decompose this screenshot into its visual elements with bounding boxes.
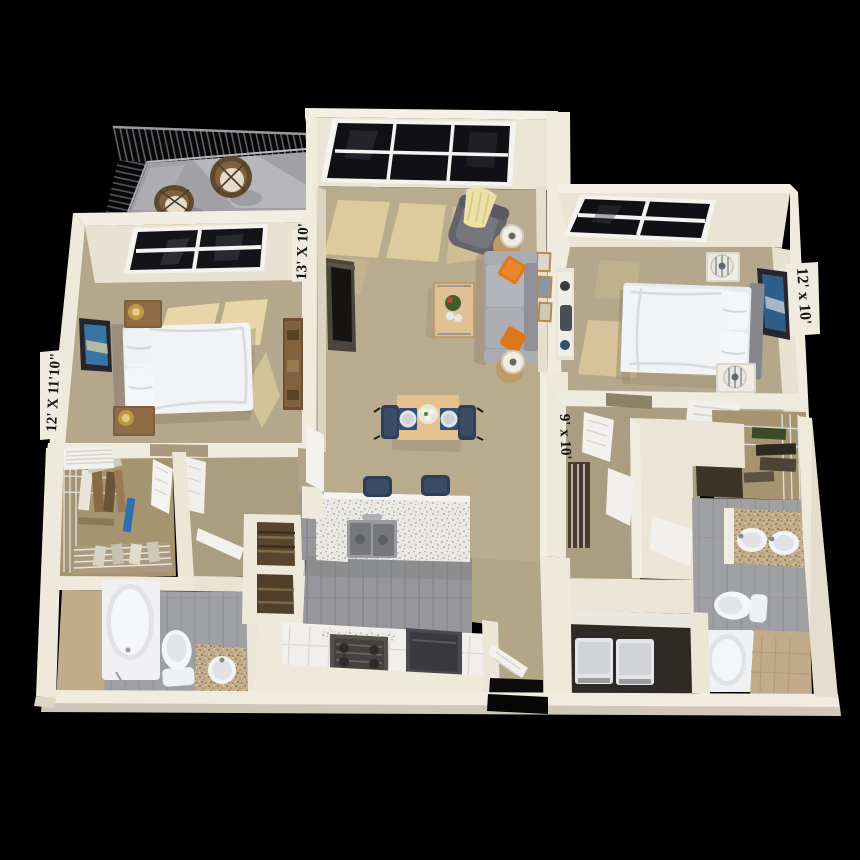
svg-text:9' x 10': 9' x 10' xyxy=(556,414,574,460)
svg-text:13' X 10': 13' X 10' xyxy=(294,223,312,280)
